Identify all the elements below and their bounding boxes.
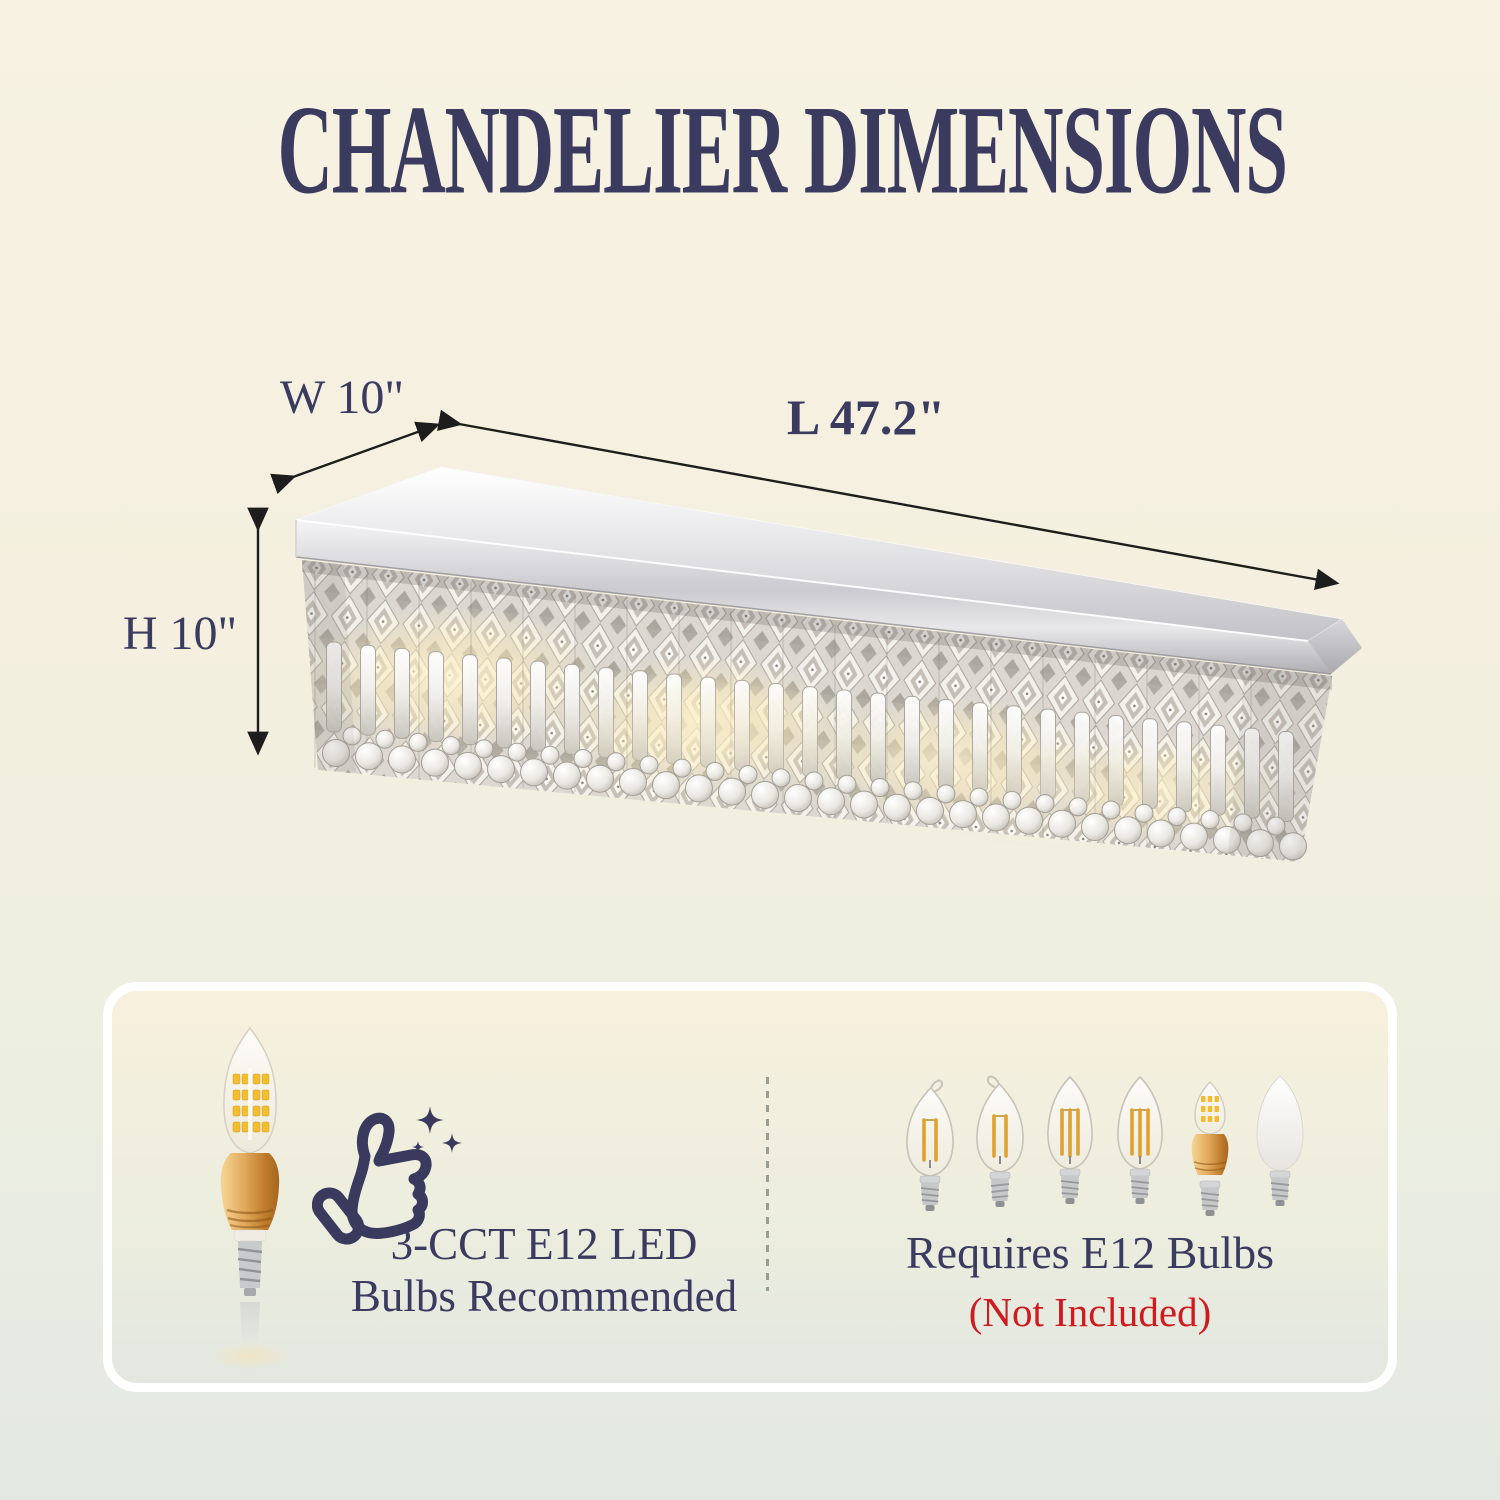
bulb-torpedo-clear-icon <box>1118 1077 1162 1204</box>
sparkles-icon <box>412 1106 462 1153</box>
e12-bulbs-row <box>893 1068 1323 1218</box>
length-dimension-label: L 47.2" <box>766 392 966 442</box>
chandelier-image <box>0 0 1500 960</box>
not-included-note: (Not Included) <box>890 1290 1290 1335</box>
bulb-gold-led-candle-icon <box>1192 1082 1229 1216</box>
width-arrow <box>293 425 437 477</box>
height-dimension-label: H 10" <box>120 610 240 658</box>
required-bulbs-text: Requires E12 Bulbs (Not Included) <box>890 1228 1290 1335</box>
recommended-line2: Bulbs Recommended <box>318 1270 770 1322</box>
width-dimension-label: W 10" <box>277 374 407 422</box>
bulb-frosted-white-icon <box>1257 1076 1303 1206</box>
card-divider <box>766 1077 769 1291</box>
bulb-flame-tip-clear-icon <box>977 1077 1023 1207</box>
recommended-line1: 3-CCT E12 LED <box>318 1218 770 1270</box>
bulb-torpedo-clear-icon <box>1048 1077 1092 1204</box>
infographic-page: CHANDELIER DIMENSIONS <box>0 0 1500 1500</box>
bulb-flame-tip-clear-icon <box>907 1081 953 1211</box>
required-line1: Requires E12 Bulbs <box>906 1227 1274 1278</box>
recommended-bulbs-text: 3-CCT E12 LED Bulbs Recommended <box>318 1218 770 1322</box>
gold-led-candle-bulb-icon <box>207 1022 293 1378</box>
